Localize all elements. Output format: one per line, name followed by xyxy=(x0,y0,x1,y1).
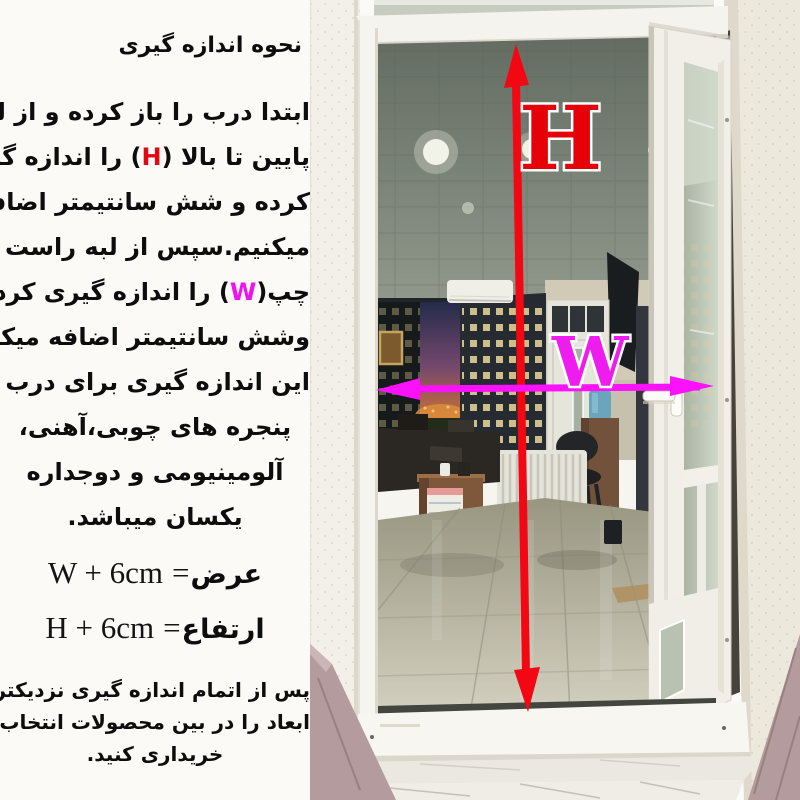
instruction-line-5: چپ(W) را اندازه گیری کرده xyxy=(0,270,310,315)
instruction-line-6: وشش سانتیمتر اضافه میکنیم. xyxy=(0,315,310,360)
h-variable: H xyxy=(142,143,162,171)
h-variable-group: (H) xyxy=(131,143,173,171)
width-formula-latin: W + 6cm xyxy=(48,555,163,590)
marble-step xyxy=(342,756,764,800)
purchase-note-line-3: خریداری کنید. xyxy=(0,738,310,770)
line-text: چپ xyxy=(267,278,310,306)
doorway-photo: H W xyxy=(310,0,800,800)
instruction-line-2: پایین تا بالا (H) را اندازه گیری xyxy=(0,135,310,180)
measurement-guide: نحوه اندازه گیری ابتدا درب را باز کرده و… xyxy=(0,0,800,800)
line-text: پایین تا بالا xyxy=(173,143,310,171)
paren-close: ) xyxy=(162,143,173,171)
w-variable-group: (W) xyxy=(219,278,267,306)
width-formula-label: عرض xyxy=(190,559,262,590)
paren-close: ) xyxy=(256,278,267,306)
instruction-line-1: ابتدا درب را باز کرده و از لبه xyxy=(0,90,310,135)
line-text: را اندازه گیری کرده xyxy=(0,278,219,306)
height-formula-latin: H + 6cm xyxy=(45,610,154,645)
formulas: W + 6cm=عرض H + 6cm=ارتفاع xyxy=(0,545,310,655)
w-variable: W xyxy=(230,278,256,306)
line-text: را اندازه گیری xyxy=(0,143,131,171)
purchase-note: پس از اتمام اندازه گیری نزدیکترین ابعاد … xyxy=(0,674,310,770)
instruction-line-3: کرده و شش سانتیمتر اضافه xyxy=(0,180,310,225)
instruction-line-10: یکسان میباشد. xyxy=(0,495,310,540)
instruction-line-4: میکنیم.سپس از لبه راست تا xyxy=(0,225,310,270)
w-label: W xyxy=(551,323,630,403)
instruction-line-9: آلومینیومی و دوجداره xyxy=(0,450,310,495)
threshold-sill xyxy=(354,698,750,762)
height-formula: H + 6cm=ارتفاع xyxy=(0,600,310,655)
instruction-line-7: این اندازه گیری برای درب و xyxy=(0,360,310,405)
guide-title: نحوه اندازه گیری xyxy=(118,33,302,58)
instructions-panel: نحوه اندازه گیری ابتدا درب را باز کرده و… xyxy=(0,0,310,800)
width-formula: W + 6cm=عرض xyxy=(0,545,310,600)
open-door-panel xyxy=(643,22,731,737)
height-formula-label: ارتفاع xyxy=(182,614,265,645)
purchase-note-line-2: ابعاد را در بین محصولات انتخاب و xyxy=(0,706,310,738)
purchase-note-line-1: پس از اتمام اندازه گیری نزدیکترین xyxy=(0,674,310,706)
measure-instructions: ابتدا درب را باز کرده و از لبه پایین تا … xyxy=(0,90,310,540)
instruction-line-8: پنجره های چوبی،آهنی، xyxy=(0,405,310,450)
h-label: H xyxy=(519,86,602,190)
equals-sign: = xyxy=(172,555,189,590)
paren-open: ( xyxy=(131,143,142,171)
equals-sign: = xyxy=(163,610,180,645)
paren-open: ( xyxy=(219,278,230,306)
